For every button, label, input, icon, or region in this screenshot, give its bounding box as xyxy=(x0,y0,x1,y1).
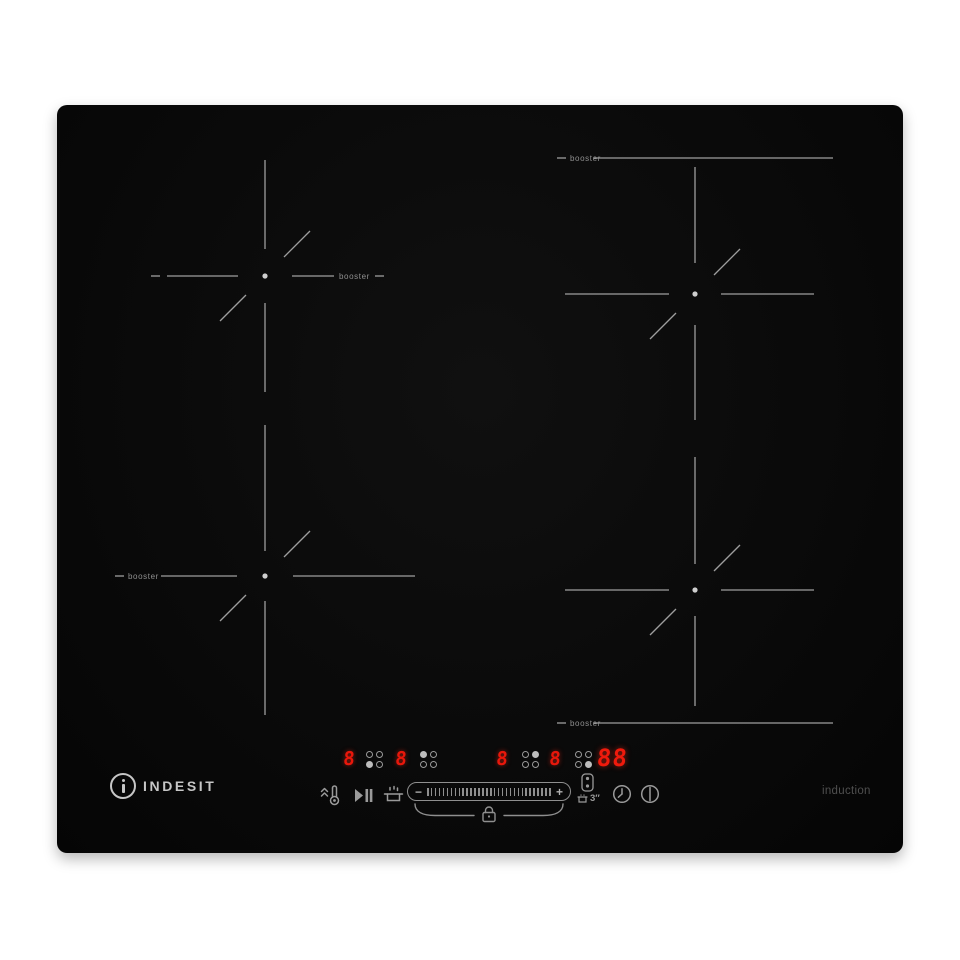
slider-tick xyxy=(451,788,453,796)
power-display-front-right: 8 xyxy=(547,748,563,770)
flexi-pan-icon xyxy=(576,794,589,804)
slider-tick xyxy=(506,788,508,796)
zone-dot-active xyxy=(585,761,592,768)
slider-tick xyxy=(529,788,531,796)
brand-name: INDESIT xyxy=(143,778,216,794)
slider-tick xyxy=(478,788,480,796)
slider-tick xyxy=(549,788,551,796)
zone-indicator-front-left[interactable] xyxy=(366,751,383,768)
zone-dot xyxy=(575,751,582,758)
booster-label: booster xyxy=(570,719,601,728)
zone-dot xyxy=(420,761,427,768)
zone-indicator-rear-right[interactable] xyxy=(522,751,539,768)
slider-tick xyxy=(431,788,433,796)
slider-minus[interactable]: − xyxy=(415,786,422,798)
slider-tick xyxy=(447,788,449,796)
zone-dot xyxy=(522,751,529,758)
power-icon[interactable] xyxy=(640,784,660,804)
slider-tick xyxy=(490,788,492,796)
slider-tick xyxy=(427,788,429,796)
zone-indicator-front-right[interactable] xyxy=(575,751,592,768)
heat-up-thermometer-icon[interactable] xyxy=(319,784,341,807)
zone-front-left: booster xyxy=(115,425,415,715)
slider-tick xyxy=(494,788,496,796)
slider-tick xyxy=(455,788,457,796)
slider-tick xyxy=(525,788,527,796)
slider-tick xyxy=(537,788,539,796)
slider-tick xyxy=(533,788,535,796)
slider-tick xyxy=(541,788,543,796)
slider-tick xyxy=(435,788,437,796)
timer-clock-icon[interactable] xyxy=(612,784,632,804)
slider-tick xyxy=(466,788,468,796)
booster-label: booster xyxy=(570,154,601,163)
power-display-rear-left: 8 xyxy=(393,748,409,770)
brand-logo: INDESIT xyxy=(110,773,216,799)
zone-dot xyxy=(366,751,373,758)
slider-tick xyxy=(474,788,476,796)
slider-tick xyxy=(459,788,461,796)
slider-tick xyxy=(502,788,504,796)
induction-hob: booster booster booster xyxy=(57,105,903,853)
timer-display: 88 xyxy=(596,744,629,772)
zone-dot xyxy=(376,761,383,768)
slider-tick xyxy=(439,788,441,796)
melt-pot-icon[interactable] xyxy=(383,785,404,805)
zone-dot xyxy=(585,751,592,758)
zone-front-right: booster xyxy=(557,457,833,728)
slider-tick xyxy=(443,788,445,796)
slider-tick xyxy=(522,788,524,796)
child-lock-icon[interactable] xyxy=(409,803,569,825)
zone-dot xyxy=(575,761,582,768)
flexi-hold-duration: 3″ xyxy=(590,793,600,804)
slider-ticks[interactable] xyxy=(427,783,551,800)
power-display-front-left: 8 xyxy=(341,748,357,770)
zone-dot-active xyxy=(420,751,427,758)
zone-indicator-rear-left[interactable] xyxy=(420,751,437,768)
zone-dot xyxy=(430,751,437,758)
zone-dot xyxy=(376,751,383,758)
slider-tick xyxy=(462,788,464,796)
slider-plus[interactable]: + xyxy=(556,786,563,798)
slider-tick xyxy=(498,788,500,796)
slider-tick xyxy=(482,788,484,796)
power-slider[interactable]: − + xyxy=(407,782,571,801)
slider-tick xyxy=(470,788,472,796)
zone-rear-left: booster xyxy=(151,160,384,392)
zone-dot-active xyxy=(532,751,539,758)
slider-tick xyxy=(510,788,512,796)
power-display-rear-right: 8 xyxy=(494,748,510,770)
flexi-zone-icon[interactable] xyxy=(581,773,594,792)
indesit-logo-i-icon xyxy=(110,773,136,799)
cooking-zones-graphic: booster booster booster xyxy=(57,105,903,853)
zone-dot xyxy=(522,761,529,768)
slider-tick xyxy=(514,788,516,796)
slider-tick xyxy=(486,788,488,796)
zone-dot xyxy=(430,761,437,768)
play-pause-icon[interactable] xyxy=(353,787,373,804)
slider-tick xyxy=(518,788,520,796)
zone-dot-active xyxy=(366,761,373,768)
booster-label: booster xyxy=(339,272,370,281)
booster-label: booster xyxy=(128,572,159,581)
slider-tick xyxy=(545,788,547,796)
zone-dot xyxy=(532,761,539,768)
induction-type-label: induction xyxy=(822,785,871,797)
zone-rear-right: booster xyxy=(557,154,833,420)
